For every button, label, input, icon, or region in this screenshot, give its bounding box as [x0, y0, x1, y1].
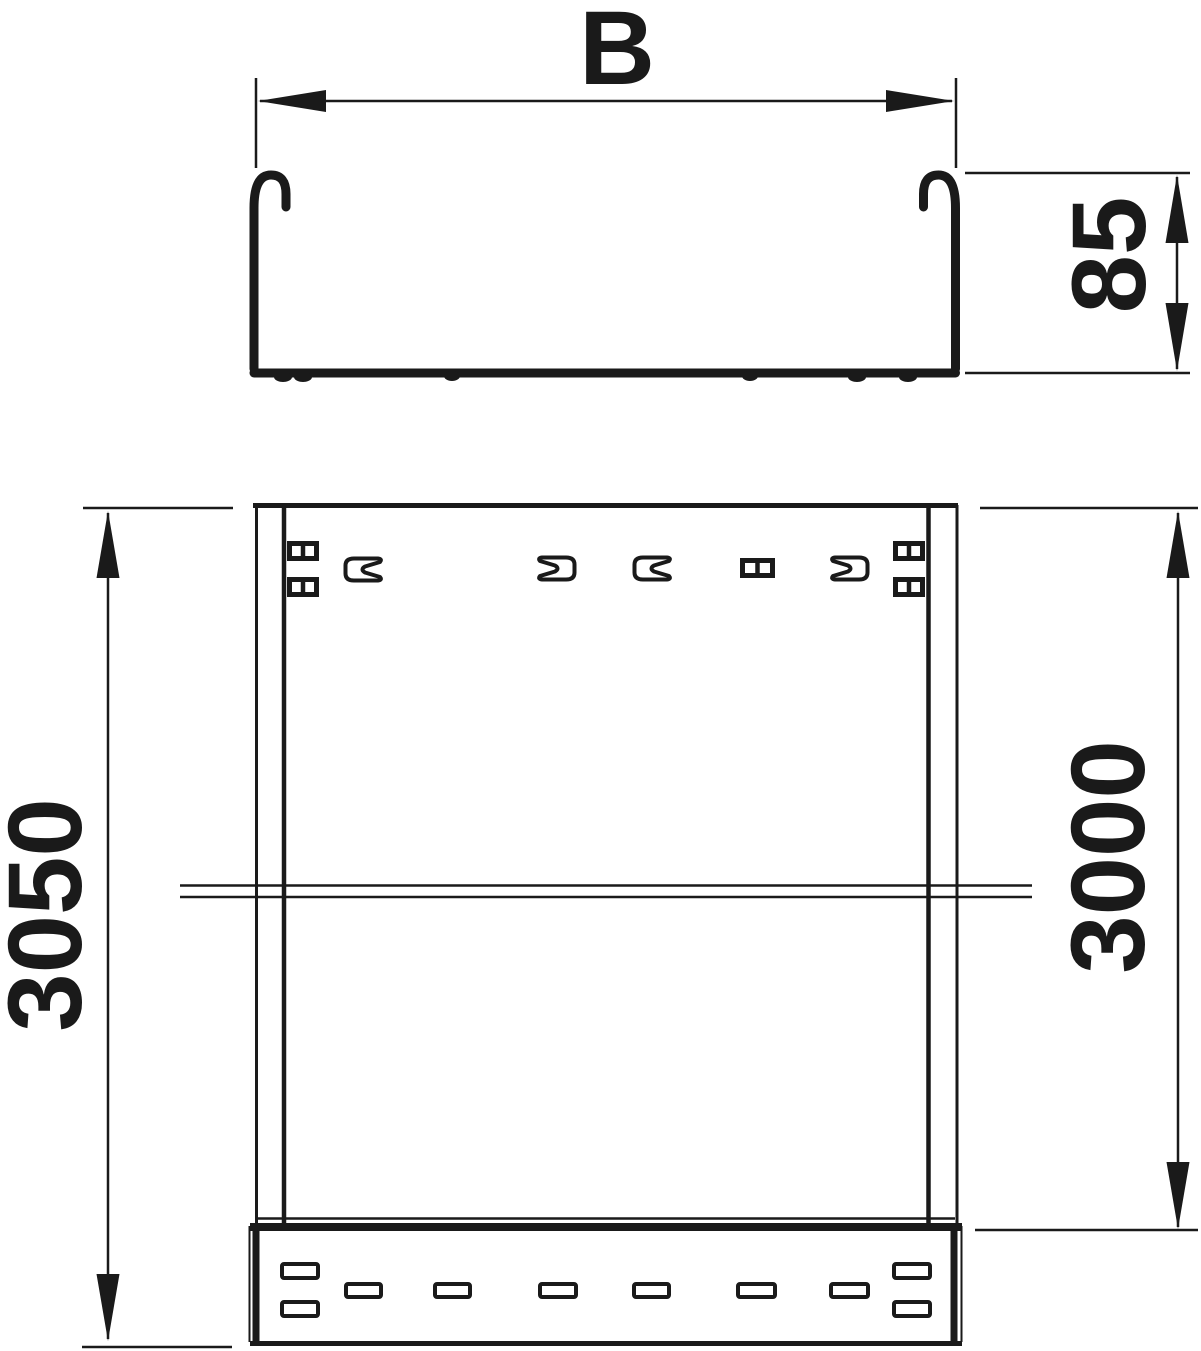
coupler-slot — [540, 1284, 576, 1297]
profile-foot — [444, 371, 460, 381]
segment-length-dimension-label: 3000 — [1050, 740, 1167, 974]
total-length-arrow-down — [97, 1274, 120, 1341]
coupler-slot — [634, 1284, 669, 1297]
profile-left-wall — [254, 175, 286, 369]
segment-length-arrow-down — [1167, 1162, 1190, 1229]
width-dimension-label: B — [579, 0, 655, 107]
coupler-slot — [894, 1264, 930, 1278]
punch-slot-tongue-left — [832, 558, 867, 580]
total-length-arrow-up — [97, 511, 120, 578]
height-dimension-label: 85 — [1051, 197, 1168, 314]
segment-length-arrow-up — [1167, 511, 1190, 578]
profile-foot — [848, 372, 866, 382]
segment-length-dimension: 3000 — [975, 508, 1198, 1230]
total-length-dimension-label: 3050 — [0, 798, 104, 1032]
coupler-slots — [282, 1264, 930, 1316]
height-arrow-down — [1166, 303, 1189, 371]
punch-slot-window-single — [743, 559, 773, 577]
drawing-page: B 85 — [0, 0, 1201, 1351]
total-length-dimension: 3050 — [0, 508, 233, 1347]
plan-view: 3050 3000 — [0, 505, 1198, 1347]
coupler-slot — [282, 1302, 318, 1316]
coupler-slot — [346, 1284, 381, 1297]
technical-drawing-canvas: B 85 — [0, 0, 1201, 1351]
punch-slot-tongue-right — [346, 559, 381, 581]
plan-punch-slots — [290, 542, 923, 596]
width-arrow-left — [258, 90, 326, 112]
profile-foot — [274, 372, 292, 382]
width-arrow-right — [886, 90, 954, 112]
coupler-slot — [894, 1302, 930, 1316]
punch-slot-window-pair-right — [896, 542, 923, 596]
punch-slot-tongue-right — [635, 558, 670, 580]
punch-slot-window-pair-left — [290, 542, 317, 596]
punch-slot-tongue-left — [539, 558, 574, 580]
profile-foot — [899, 372, 917, 382]
cross-section-view: B 85 — [254, 0, 1190, 382]
coupler-slot — [831, 1284, 868, 1297]
coupler-slot — [282, 1264, 318, 1278]
coupler-slot — [435, 1284, 470, 1297]
profile-foot — [294, 372, 312, 382]
profile-foot — [742, 371, 758, 381]
coupler-slot — [738, 1284, 775, 1297]
coupler-plate — [250, 1226, 963, 1344]
height-arrow-up — [1166, 175, 1189, 243]
profile-right-wall — [924, 175, 956, 369]
